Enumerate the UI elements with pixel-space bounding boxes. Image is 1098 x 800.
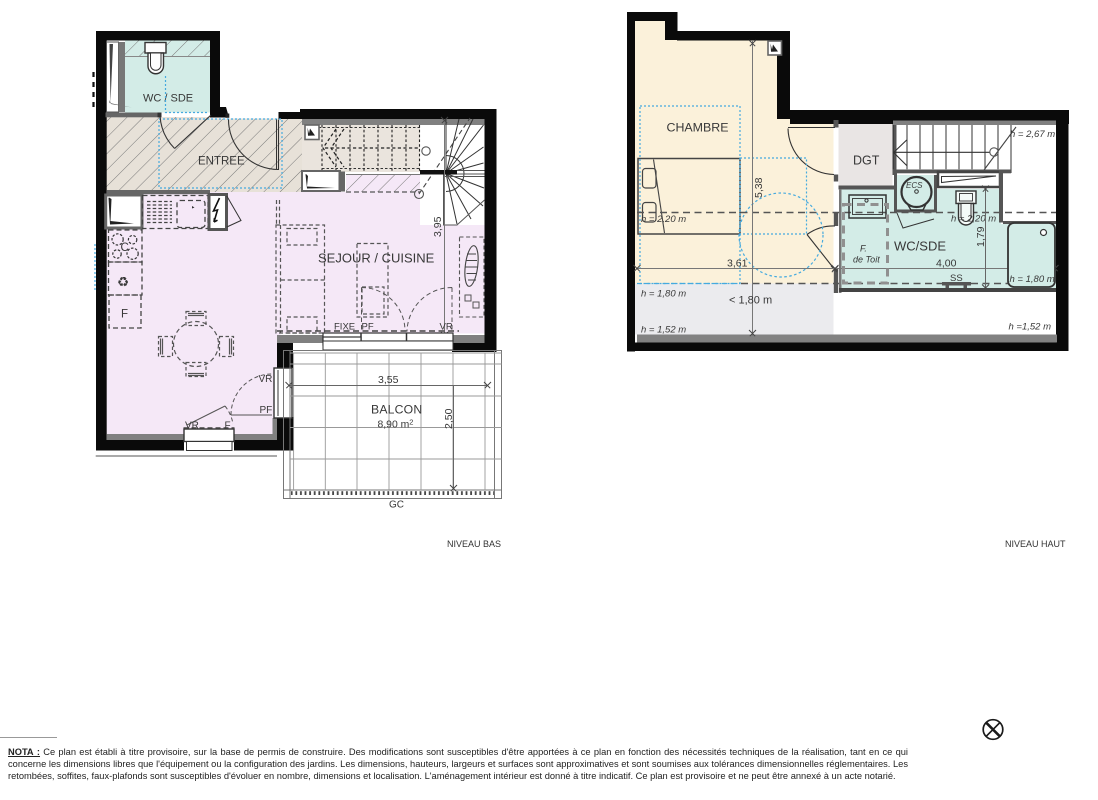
svg-text:de Toit: de Toit (853, 255, 880, 265)
svg-text:ENTREE: ENTREE (198, 156, 245, 168)
svg-text:1,79: 1,79 (975, 226, 987, 247)
svg-text:PF: PF (362, 322, 374, 333)
svg-text:5,38: 5,38 (753, 177, 765, 198)
svg-text:< 1,80 m: < 1,80 m (729, 295, 772, 307)
svg-text:WC / SDE: WC / SDE (143, 93, 193, 105)
svg-text:8,90 m2: 8,90 m2 (378, 418, 414, 431)
svg-text:F.: F. (860, 244, 867, 254)
svg-text:h = 2,20 m: h = 2,20 m (641, 214, 686, 225)
svg-text:C: C (121, 242, 129, 254)
svg-text:3,55: 3,55 (378, 374, 399, 386)
svg-text:2,50: 2,50 (443, 408, 455, 429)
svg-text:h = 1,52 m: h = 1,52 m (641, 325, 686, 336)
svg-text:h =1,52 m: h =1,52 m (1009, 322, 1052, 333)
svg-text:VR: VR (185, 421, 199, 432)
svg-text:h = 1,80 m: h = 1,80 m (641, 289, 686, 300)
svg-text:SEJOUR / CUISINE: SEJOUR / CUISINE (318, 251, 435, 266)
svg-text:3,61: 3,61 (727, 258, 748, 270)
svg-text:VR: VR (440, 322, 453, 333)
svg-text:F: F (121, 309, 128, 321)
svg-text:3,95: 3,95 (432, 216, 444, 237)
svg-text:WC/SDE: WC/SDE (894, 239, 946, 254)
svg-text:GC: GC (389, 500, 404, 511)
svg-text:♻: ♻ (117, 275, 129, 290)
svg-text:ECS: ECS (906, 181, 923, 190)
svg-text:h = 2,67 m: h = 2,67 m (1010, 129, 1055, 140)
svg-text:BALCON: BALCON (371, 403, 422, 417)
svg-text:VR: VR (259, 374, 273, 385)
svg-text:h = 1,80 m: h = 1,80 m (1010, 274, 1055, 285)
svg-text:4,00: 4,00 (936, 258, 957, 270)
svg-text:F: F (225, 421, 231, 432)
svg-text:DGT: DGT (853, 154, 880, 168)
svg-text:FIXE: FIXE (334, 322, 355, 333)
svg-text:h = 2,20 m: h = 2,20 m (951, 214, 996, 225)
svg-text:CHAMBRE: CHAMBRE (667, 121, 729, 135)
svg-text:PF: PF (260, 405, 273, 416)
